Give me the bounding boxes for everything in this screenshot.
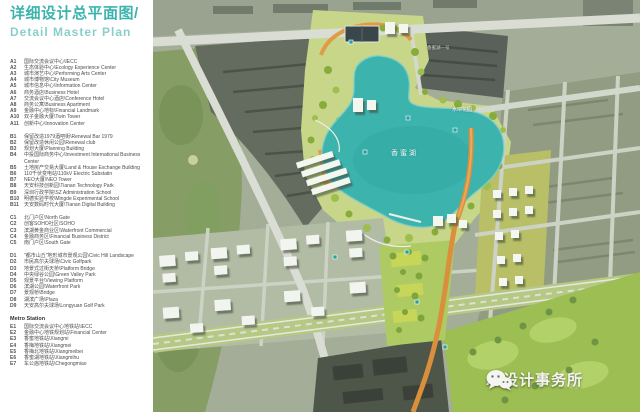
legend-item: A11创新中心\Innovation Center [10,121,153,127]
legend-groups: A1国际交流会议中心\IECCA2生态体验中心\Ecology Experien… [10,59,153,368]
legend-item-code: E7 [10,361,24,367]
master-plan-image: 香蜜湖 水帘花园 香蜜湖一号 AI设计事务所 详细设计总平面图/ Detail … [0,0,640,412]
legend-item: D9天安高尔夫球场\Longyuan Golf Park [10,303,153,309]
metro-station-header: Metro Station [10,316,153,322]
legend-group-C: C1北门户区\North GateC2创客SOHO社区\SOHOC3滨湖黄金商业… [10,215,153,246]
legend-item: B11天安数码时代大厦\Tianan Digital Building [10,202,153,208]
legend-panel: 详细设计总平面图/ Detail Master Plan A1国际交流会议中心\… [0,0,153,412]
lake-label: 香蜜湖 [391,148,418,158]
legend-item: E7车公庙地铁站\Chegongmiao [10,361,153,367]
legend-group-D: D1"都市山丘"地形城市景观公园\Civic Hill LandscapeD2市… [10,253,153,309]
watermark: AI设计事务所 [486,369,583,390]
legend-item-code: B4 [10,152,24,164]
page-subtitle: Detail Master Plan [10,25,153,39]
legend-item-code: B11 [10,202,24,208]
legend-item-label: 中投国际商务中心\Investment International Busine… [24,152,150,164]
legend-item-label: 创新中心\Innovation Center [24,121,150,127]
wechat-icon [486,369,512,391]
garden-label: 水帘花园 [452,106,472,113]
legend-item: C5南门户区\South Gate [10,240,153,246]
legend-item-label: 车公庙地铁站\Chegongmiao [24,361,150,367]
legend-group-metro: E1国际交流会议中心地铁站\IECCE2金融中心地铁规划站\Financial … [10,324,153,367]
legend-group-A: A1国际交流会议中心\IECCA2生态体验中心\Ecology Experien… [10,59,153,127]
map-region: 香蜜湖 水帘花园 香蜜湖一号 AI设计事务所 [153,0,640,412]
legend-item-code: D9 [10,303,24,309]
site-plan-graphic [153,0,640,412]
legend-item-label: 天安高尔夫球场\Longyuan Golf Park [24,303,150,309]
legend-item: B4中投国际商务中心\Investment International Busi… [10,152,153,164]
legend-group-B: B1保留改造1979酒吧街\Renewal Bar 1979B2保留改造休闲公园… [10,134,153,208]
legend-item-code: A11 [10,121,24,127]
estate-label: 香蜜湖一号 [427,45,450,51]
legend-item-label: 南门户区\South Gate [24,240,150,246]
legend-item-label: 天安数码时代大厦\Tianan Digital Building [24,202,150,208]
page-title: 详细设计总平面图/ [10,6,153,23]
legend-item-code: C5 [10,240,24,246]
